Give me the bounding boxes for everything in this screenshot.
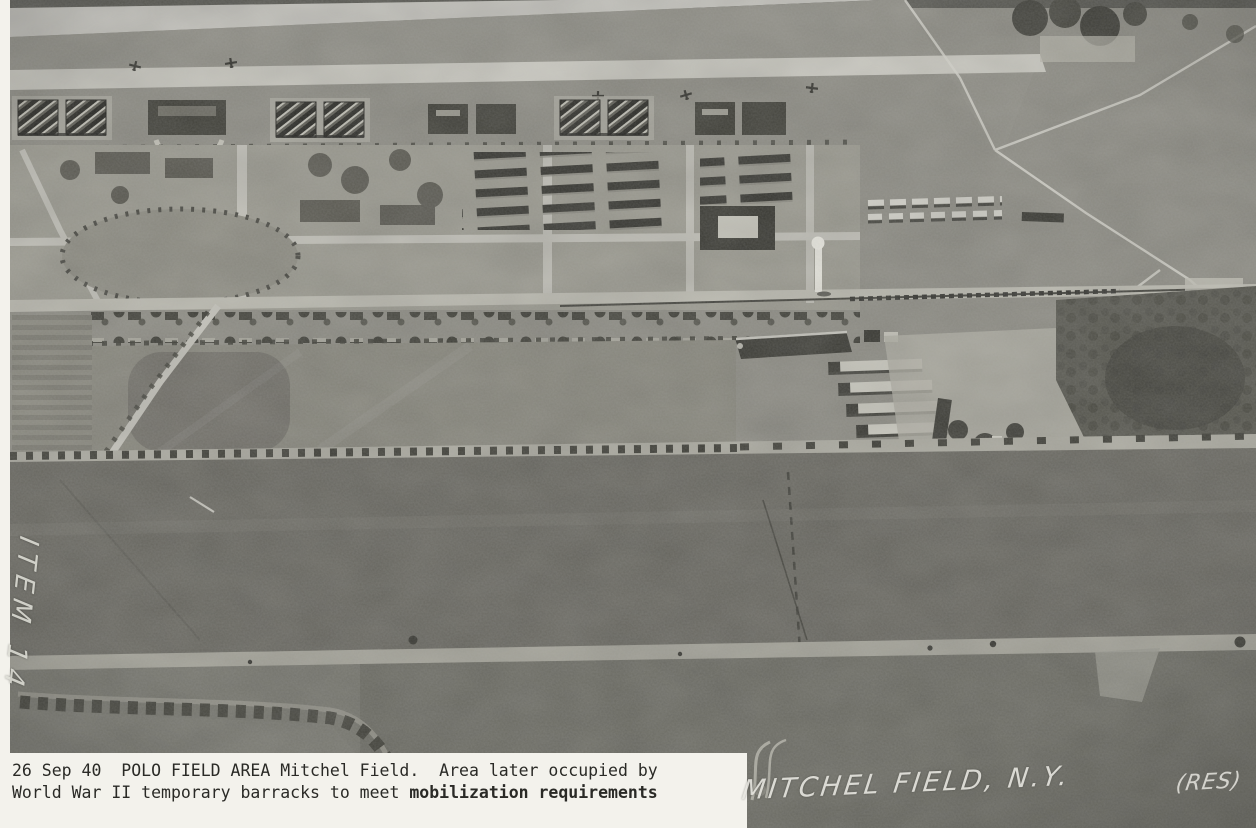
caption-line-1: 26 Sep 40 POLO FIELD AREA Mitchel Field.… (12, 760, 747, 782)
handwritten-res-mark: (RES) (1174, 768, 1243, 797)
aerial-photo-mitchel-field: ITEM 14 MITCHEL FIELD, N.Y. (RES) 26 Sep… (0, 0, 1256, 828)
vignette (10, 0, 1256, 828)
photo-white-margin (0, 0, 10, 828)
caption-line-2: World War II temporary barracks to meet … (12, 782, 747, 804)
aerial-photo-artwork (0, 0, 1256, 828)
typed-caption-box: 26 Sep 40 POLO FIELD AREA Mitchel Field.… (0, 753, 747, 828)
caption-line-2-regular: World War II temporary barracks to meet (12, 783, 409, 802)
caption-line-2-bold: mobilization requirements (409, 783, 657, 802)
